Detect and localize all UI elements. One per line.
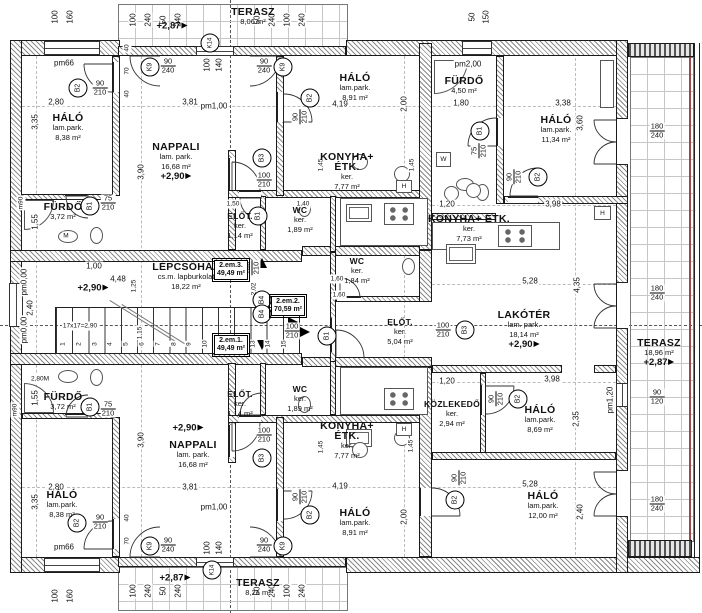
- opening-size-label: 100210: [285, 323, 300, 340]
- door-opening: [229, 158, 236, 190]
- door-opening: [481, 385, 486, 415]
- door-tag-B2: B2: [529, 168, 548, 187]
- dim-label: 1,00: [85, 262, 103, 271]
- dim-label: 1,55: [31, 389, 40, 407]
- stair-wall: [10, 353, 302, 365]
- dim-label: 150: [482, 9, 491, 24]
- room-label-furdo_r: FÜRDŐ4,50 m²: [445, 76, 484, 96]
- door-arc: [336, 330, 364, 358]
- room-label-halo_bl: HÁLÓlam.park.8,38 m²: [47, 490, 78, 520]
- dim-label: 3,98: [543, 375, 561, 384]
- opening-size-label: 75210: [101, 195, 116, 212]
- pm-label: pm0,00: [20, 268, 29, 297]
- floor-plan-sheet: W H H H: [0, 0, 702, 613]
- dim-label: 100: [51, 588, 60, 603]
- dim-label: 1,20: [438, 200, 456, 209]
- room-label-terasz_t: TERASZ8,06 m²: [231, 7, 275, 27]
- pm-label: pm66: [53, 543, 75, 552]
- dim-label: 100: [51, 9, 60, 24]
- stair-step-number: 2: [74, 341, 83, 347]
- partition-wall: [276, 56, 284, 196]
- stair-wall: [302, 246, 432, 256]
- dim-label: 100: [283, 583, 292, 598]
- opening-size-label: 90210: [93, 80, 108, 97]
- opening-size-label: 75210: [471, 144, 488, 159]
- dim-label: 240: [298, 12, 307, 27]
- dim-label: 3,81: [181, 98, 199, 107]
- room-label-nappali_t: NAPPALIlam. park.16,68 m²+2,90: [152, 142, 199, 182]
- dim-chain-line: [404, 56, 405, 557]
- door-tag-B1: B1: [81, 197, 100, 216]
- stove-icon: [384, 388, 414, 410]
- dim-label: 70: [123, 66, 132, 75]
- door-opening: [277, 92, 284, 122]
- dim-label: 100: [203, 57, 212, 72]
- washbasin-icon: [58, 370, 78, 383]
- door-tag-B2: B2: [69, 79, 88, 98]
- dim-label: 240: [298, 583, 307, 598]
- room-label-lakoter: LAKÓTÉRlam. park.18,14 m²+2,90: [498, 310, 551, 350]
- door-opening: [508, 197, 538, 204]
- dim-label: 1,20: [438, 377, 456, 386]
- door-opening: [113, 519, 120, 549]
- room-label-wc_t: WCker.1,89 m²: [287, 205, 312, 235]
- door-tag-B3: B3: [253, 449, 272, 468]
- kitchen-sink-icon: [446, 244, 476, 264]
- level-marker: +2,90: [171, 424, 204, 433]
- dim-label: 2,80M: [30, 375, 50, 384]
- stair-step-number: 1: [59, 341, 68, 347]
- dim-label: 50: [159, 586, 168, 597]
- pm-label: pm0,00: [20, 316, 29, 345]
- level-marker: +2,87: [158, 574, 191, 583]
- boiler-icon: H: [594, 206, 611, 220]
- toilet-icon: [90, 369, 103, 386]
- dim-label: 1,80: [452, 99, 470, 108]
- room-label-elot_r: ELŐT.ker.5,04 m²: [387, 317, 413, 347]
- dim-label: 3,35: [31, 113, 40, 131]
- partition-wall: [419, 250, 432, 302]
- partition-wall: [330, 196, 336, 252]
- door-arc: [594, 120, 616, 164]
- room-label-halo_tl: HÁLÓlam.park.8,38 m²: [53, 113, 84, 143]
- dim-label: 40: [123, 513, 132, 522]
- stair-step-number: 4: [106, 341, 115, 347]
- dim-label: 5,28: [521, 277, 539, 286]
- boiler-icon: H: [396, 180, 412, 193]
- room-label-konyha_t: KONYHA+ÉTK.ker.7,77 m²: [320, 152, 374, 192]
- dim-label: 2,00: [400, 95, 409, 113]
- pm-label: pm1,20: [606, 386, 615, 415]
- dim-label: 160: [66, 588, 75, 603]
- terrace-railing-bottom: [628, 540, 692, 557]
- partition-wall: [432, 365, 562, 373]
- stair-step-number: 3: [90, 341, 99, 347]
- dim-label: 2,40: [576, 503, 585, 521]
- door-tag-B3: B3: [456, 321, 475, 340]
- opening-size-label: 90120: [650, 389, 665, 406]
- pm-label: m90: [17, 196, 26, 211]
- toilet-icon: [402, 258, 415, 275]
- room-label-terasz_r: TERASZ18,96 m²+2,87: [637, 338, 681, 368]
- terrace-door-opening: [617, 470, 628, 517]
- dim-label: 3,90: [137, 163, 146, 181]
- terrace-edge-line: [689, 57, 691, 540]
- dim-label: 100: [283, 12, 292, 27]
- door-opening: [113, 62, 120, 92]
- sheet-right-border: [694, 43, 700, 557]
- window: [616, 383, 628, 407]
- room-label-furdo_tl: FÜRDŐ3,72 m²: [44, 202, 83, 222]
- opening-size-label: 90210: [451, 471, 468, 486]
- stair-step-number: 13: [248, 339, 257, 348]
- washing-machine-icon: W: [436, 152, 451, 167]
- door-arc: [594, 472, 616, 516]
- room-label-halo_r3: HÁLÓlam.park.12,00 m²: [528, 491, 559, 521]
- pm-label: pm1,00: [200, 503, 229, 512]
- boiler-icon: H: [396, 423, 412, 436]
- opening-size-label: 90240: [161, 58, 176, 75]
- door-tag-B1: B1: [471, 122, 490, 141]
- toilet-icon: [90, 227, 103, 244]
- opening-size-label: 90210: [292, 110, 309, 125]
- dim-label: 1,45: [408, 158, 417, 173]
- dim-label: 140: [215, 57, 224, 72]
- pm-label: pm1,00: [200, 102, 229, 111]
- room-label-halo_b2: HÁLÓlam.park.8,91 m²: [340, 508, 371, 538]
- partition-wall: [260, 363, 266, 415]
- partition-wall: [594, 365, 616, 373]
- wardrobe-icon: [600, 60, 614, 108]
- level-marker: +2,87: [155, 22, 188, 31]
- door-tag-B3: B3: [253, 149, 272, 168]
- room-label-lepcsohaz: LÉPCSŐHÁZcs.m. lapburkolat18,22 m²: [152, 262, 219, 292]
- door-tag-B1: B1: [81, 398, 100, 417]
- dim-label: 240: [174, 583, 183, 598]
- opening-size-label: 90210: [292, 490, 309, 505]
- fixture-m-label: M: [62, 232, 69, 241]
- door-tag-B2: B2: [301, 506, 320, 525]
- door-tag-B1: B1: [318, 327, 337, 346]
- dim-label: 3,81: [181, 483, 199, 492]
- dim-label: 100: [129, 12, 138, 27]
- dim-label: 100: [129, 583, 138, 598]
- door-opening: [420, 488, 432, 516]
- door-tag-K9: K9: [141, 58, 160, 77]
- dim-label: 3,90: [137, 431, 146, 449]
- dim-label: 40: [123, 89, 132, 98]
- level-marker: +2,90: [76, 284, 109, 293]
- stair-formula: 17x17=2,90: [62, 322, 98, 331]
- room-label-wc_b: WCker.1,89 m²: [287, 384, 312, 414]
- window: [44, 558, 100, 572]
- stair-step-number: 5: [122, 341, 131, 347]
- unit-area-box-u2: 2.em.2.70,59 m²: [271, 296, 305, 316]
- pm-label: pm66: [53, 59, 75, 68]
- room-label-halo_r2: HÁLÓlam.park.8,69 m²: [525, 405, 556, 435]
- opening-size-label: 90210: [488, 392, 505, 407]
- room-label-terasz_b: TERASZ8,21 m²: [236, 578, 280, 598]
- opening-size-label: 90240: [161, 537, 176, 554]
- stair-step-number: 7: [153, 341, 162, 347]
- dim-label: 3,98: [544, 200, 562, 209]
- dim-label: 2,40: [26, 299, 35, 317]
- room-label-konyha_b: KONYHA+ÉTK.ker.7,77 m²: [320, 421, 374, 461]
- pm-label: m90: [11, 403, 20, 418]
- opening-size-label: 75210: [101, 401, 116, 418]
- stair-step-number: 10: [201, 339, 210, 348]
- unit-area-box-u1: 2.em.1.49,49 m²: [214, 335, 248, 355]
- room-label-konyha_r: KONYHA+ ÉTK.ker.7,73 m²: [428, 214, 510, 244]
- dim-label: 1,60: [330, 275, 345, 284]
- room-label-nappali_b: NAPPALIlam. park.16,68 m²: [169, 440, 216, 470]
- door-tag-K9: K9: [274, 537, 293, 556]
- opening-size-label: 90240: [257, 537, 272, 554]
- door-tag-K9: K9: [274, 58, 293, 77]
- dim-label: 4,19: [331, 482, 349, 491]
- dim-label: 1,60: [332, 291, 347, 300]
- dim-label: 2,00: [400, 508, 409, 526]
- dim-label: 240: [144, 583, 153, 598]
- outer-wall: [346, 557, 700, 573]
- dim-label: 5,28: [521, 480, 539, 489]
- door-tag-B4: B4: [253, 305, 272, 324]
- dim-label: 1,15: [136, 326, 145, 341]
- dim-label: 1,50: [226, 200, 241, 209]
- opening-size-label: 180240: [650, 285, 665, 302]
- dim-label: 1,45: [407, 439, 416, 454]
- room-label-elot_b: ELŐT.ker.1,14 m²: [227, 389, 253, 419]
- pm-label: pm2,00: [454, 60, 483, 69]
- stair-step-number: 6: [138, 341, 147, 347]
- opening-size-label: 90240: [257, 58, 272, 75]
- dim-chain-line: [36, 56, 37, 557]
- door-tag-K9: K9: [141, 537, 160, 556]
- dim-label: 240: [144, 12, 153, 27]
- entry-arrow-icon: [300, 327, 310, 337]
- dim-label: 3,35: [31, 493, 40, 511]
- dim-label: 1,55: [31, 213, 40, 231]
- terrace-door-opening: [617, 282, 628, 329]
- dim-label: 3,38: [554, 99, 572, 108]
- dim-chain-line: [432, 382, 616, 383]
- room-label-halo_t2: HÁLÓlam.park.8,91 m²: [340, 73, 371, 103]
- dim-label: 50: [468, 12, 477, 23]
- door-opening: [229, 425, 236, 457]
- terrace-railing-top: [628, 43, 694, 57]
- room-label-wc_c: WCker.1,84 m²: [344, 256, 369, 286]
- door-tag-B2: B2: [301, 89, 320, 108]
- terrace-door-opening: [617, 118, 628, 165]
- opening-size-label: 180240: [650, 123, 665, 140]
- chair-icon: [466, 183, 481, 198]
- opening-size-label: 100210: [257, 427, 272, 444]
- dim-label: 70: [123, 536, 132, 545]
- stair-step-number: 14: [264, 339, 273, 348]
- stove-icon: [384, 203, 414, 225]
- stair-step-number: 8: [169, 341, 178, 347]
- door-tag-K14: K14: [203, 561, 222, 580]
- door-opening: [277, 489, 284, 521]
- opening-size-label: 100210: [436, 322, 451, 339]
- room-label-halo_r1: HÁLÓlam.park.11,34 m²: [541, 115, 572, 145]
- dim-label: 1,25: [130, 279, 139, 294]
- window: [462, 41, 492, 55]
- room-label-kozlekedo: KÖZLEKEDŐker.2,94 m²: [424, 399, 480, 429]
- dim-label: 2,35: [572, 410, 581, 428]
- door-opening: [497, 118, 504, 146]
- dim-chain-line: [432, 205, 616, 206]
- dim-label: 2,80: [47, 98, 65, 107]
- dim-label: 3,60: [576, 114, 585, 132]
- dim-label: 4,48: [109, 275, 127, 284]
- dim-label: 40: [123, 43, 132, 52]
- dim-label: 160: [66, 9, 75, 24]
- door-arc: [594, 284, 616, 328]
- door-tag-B2: B2: [446, 491, 465, 510]
- door-tag-K14: K14: [201, 34, 220, 53]
- terrace-tile-grid-bottom: [118, 567, 348, 611]
- opening-size-label: 180240: [650, 496, 665, 513]
- room-label-elot_t: ELŐT.ker.1,14 m²: [227, 211, 253, 241]
- dim-label: 100: [203, 540, 212, 555]
- partition-wall: [432, 452, 616, 460]
- opening-size-label: 90210: [93, 514, 108, 531]
- partition-wall: [330, 361, 336, 415]
- unit-area-box-u3: 2.em.3.49,49 m²: [214, 260, 248, 280]
- room-label-furdo_bl: FÜRDŐ3,72 m²: [44, 392, 83, 412]
- opening-size-label: 100210: [257, 172, 272, 189]
- kitchen-sink-icon: [346, 204, 372, 222]
- opening-size-label: 90210: [506, 170, 523, 185]
- stair-wall: [302, 357, 432, 367]
- dim-label: 140: [215, 540, 224, 555]
- dim-label: 4,35: [573, 276, 582, 294]
- stair-step-number: 15: [280, 339, 289, 348]
- window: [44, 41, 100, 55]
- stair-step-number: 9: [185, 341, 194, 347]
- door-opening: [239, 191, 261, 198]
